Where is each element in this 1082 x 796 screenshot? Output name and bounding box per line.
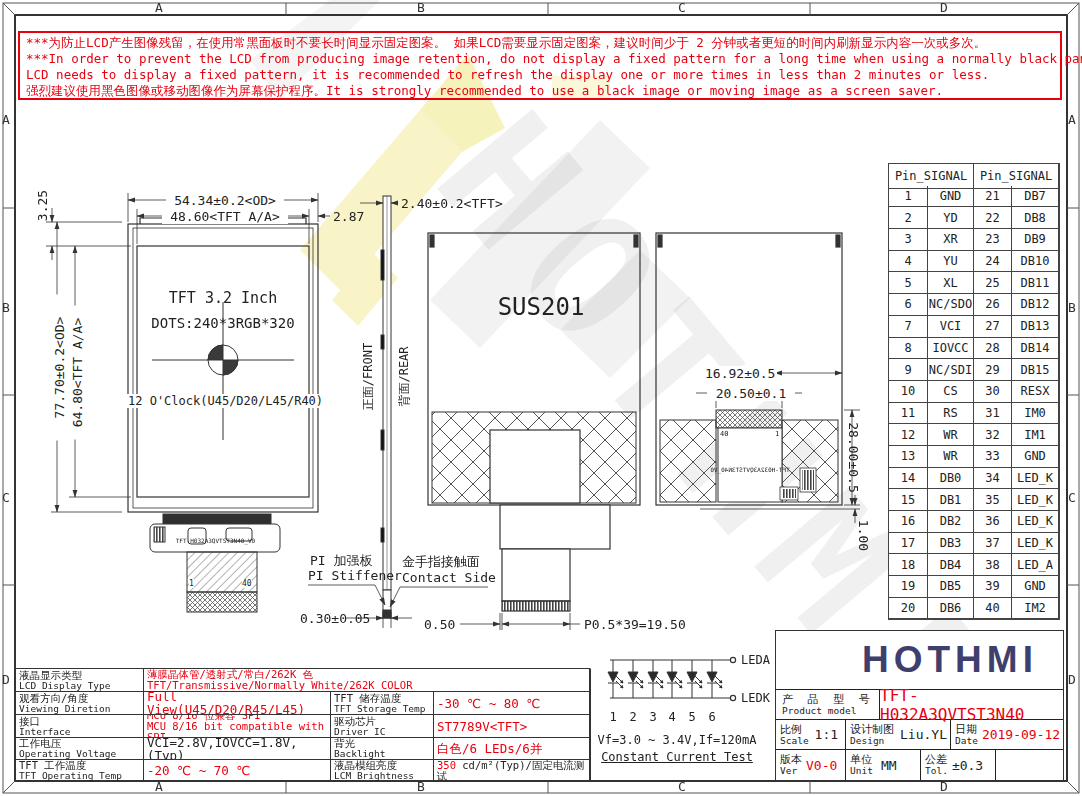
zone-letter: A bbox=[155, 0, 163, 15]
model-value-cell: TFT-H032A3QVTST3N40 bbox=[880, 690, 1063, 720]
pin-signal: RS bbox=[928, 403, 974, 425]
pin-signal: VCI bbox=[928, 316, 974, 338]
dim-finger-pitch: P0.5*39=19.50 bbox=[584, 617, 686, 632]
tolerance-value: ±0.3 bbox=[952, 758, 983, 773]
pin-signal: DB0 bbox=[928, 468, 974, 490]
title-block: HOTHMI 产 品 型 号Product model TFT-H032A3QV… bbox=[775, 630, 1064, 781]
stiffener-label-en: PI Stiffener bbox=[308, 568, 402, 583]
dim-width-aa: 48.60<TFT A/A> bbox=[162, 209, 288, 224]
scale-value: 1:1 bbox=[815, 727, 838, 742]
led-anode-label: LEDA bbox=[741, 653, 770, 667]
pin-signal: YD bbox=[928, 207, 974, 229]
pin-number: 30 bbox=[974, 381, 1012, 403]
zone-letter: B bbox=[1068, 300, 1076, 315]
dim-height-aa: 64.80<TFT A/A> bbox=[70, 306, 85, 440]
pin-number: 12 bbox=[889, 424, 928, 446]
zone-letter: D bbox=[1068, 672, 1076, 687]
pin-number: 36 bbox=[974, 511, 1012, 533]
warning-line: LCD needs to display a fixed pattern, it… bbox=[26, 67, 1054, 83]
pin-number: 5 bbox=[889, 272, 928, 294]
pin-signal: IM0 bbox=[1012, 403, 1059, 425]
pin-number: 4 bbox=[889, 251, 928, 273]
pin-signal: DB8 bbox=[1012, 207, 1059, 229]
pin-signal: XL bbox=[928, 272, 974, 294]
pin-signal: DB12 bbox=[1012, 294, 1059, 316]
pin-signal: DB9 bbox=[1012, 229, 1059, 251]
pin-signal: YU bbox=[928, 251, 974, 273]
rear-side-label: 背面/REAR bbox=[396, 336, 413, 418]
pin-signal: GND bbox=[1012, 446, 1059, 468]
pin-signal: DB2 bbox=[928, 511, 974, 533]
spec-value: Full View(U45/D20/R45/L45) bbox=[144, 692, 331, 715]
spec-value: 薄膜晶体管/透射式/常白/262K 色TFT/Transmissive/Norm… bbox=[144, 669, 591, 692]
pin-number: 32 bbox=[974, 424, 1012, 446]
pin-number: 21 bbox=[974, 186, 1012, 208]
dim-rear-width2: 20.50±0.1 bbox=[707, 386, 795, 401]
spec-label: TFT 工作温度TFT Operating Temp bbox=[16, 760, 144, 782]
rear-fpc-model-text: TFT-H032A3QVTST3N40_V0 bbox=[705, 466, 795, 473]
panel-dots-text: DOTS:240*3RGB*320 bbox=[138, 315, 308, 331]
pin-number: 31 bbox=[974, 403, 1012, 425]
pin-signal: WR bbox=[928, 424, 974, 446]
pin-number: 10 bbox=[889, 381, 928, 403]
led-vf-text: Vf=3.0 ~ 3.4V,If=120mA bbox=[592, 733, 762, 747]
pin-number: 26 bbox=[974, 294, 1012, 316]
dim-rear-lip: 1.00 bbox=[856, 516, 871, 556]
panel-size-text: TFT 3.2 Inch bbox=[148, 289, 298, 307]
pin-number: 9 bbox=[889, 359, 928, 381]
dim-thickness: 2.40±0.2<TFT> bbox=[401, 196, 503, 211]
zone-letter: D bbox=[940, 0, 948, 15]
pin-signal: LED_K bbox=[1012, 489, 1059, 511]
front-side-label: 正面/FRONT bbox=[360, 336, 377, 418]
pin-number: 37 bbox=[974, 533, 1012, 555]
dim-stiffener-thk: 0.30±0.05 bbox=[300, 611, 370, 626]
model-label-cell: 产 品 型 号Product model bbox=[776, 690, 880, 720]
pin-number: 33 bbox=[974, 446, 1012, 468]
zone-letter: C bbox=[2, 490, 10, 505]
pin-signal: NC/SDO bbox=[928, 294, 974, 316]
spec-value: -20 ℃ ~ 70 ℃ bbox=[144, 760, 331, 782]
zone-letter: D bbox=[2, 672, 10, 687]
design-cell: 设计制图Design Liu.YL bbox=[846, 720, 951, 750]
pin-signal-table: Pin_SIGNAL Pin_SIGNAL 1GND21DB72YD22DB83… bbox=[888, 163, 1060, 620]
pin-signal: LED_K bbox=[1012, 533, 1059, 555]
led-number: 2 bbox=[627, 710, 639, 724]
pin-signal: DB13 bbox=[1012, 316, 1059, 338]
pin-number: 38 bbox=[974, 554, 1012, 576]
fpc-pin-last: 40 bbox=[242, 579, 252, 588]
pin-signal: DB5 bbox=[928, 576, 974, 598]
zone-letter: C bbox=[678, 779, 686, 794]
spec-label: TFT 储存温度TFT Storage Temp bbox=[331, 692, 434, 715]
pin-signal: DB1 bbox=[928, 489, 974, 511]
spec-value: MCU 8/16 位兼容 SPIMCU 8/16 bit compatible … bbox=[144, 715, 331, 738]
shield-material-label: SUS201 bbox=[481, 293, 601, 321]
fpc-pin-first: 1 bbox=[189, 579, 194, 588]
dim-rear-width1: 16.92±0.5 bbox=[703, 366, 777, 381]
zone-letter: B bbox=[417, 0, 425, 15]
dim-finger-offset: 0.50 bbox=[424, 617, 455, 632]
dim-rear-height: 28.00±0.5 bbox=[846, 413, 861, 503]
panel-clock-text: 12 O'Clock(U45/D20/L45/R40) bbox=[126, 394, 324, 408]
led-number: 4 bbox=[666, 710, 678, 724]
pin-number: 34 bbox=[974, 468, 1012, 490]
led-cathode-label: LEDK bbox=[741, 691, 770, 705]
spec-label: 观看方向/角度Viewing Diretion bbox=[16, 692, 144, 715]
warning-line: ***为防止LCD产生图像残留，在使用常黑面板时不要长时间显示固定图案。 如果L… bbox=[26, 35, 1054, 51]
pin-number: 18 bbox=[889, 554, 928, 576]
led-number: 1 bbox=[607, 710, 619, 724]
pin-number: 27 bbox=[974, 316, 1012, 338]
scale-cell: 比例Scale 1:1 bbox=[776, 720, 846, 750]
pin-signal: LED_K bbox=[1012, 511, 1059, 533]
contact-label-en: Contact Side bbox=[402, 570, 496, 585]
pin-signal: WR bbox=[928, 446, 974, 468]
pin-number: 6 bbox=[889, 294, 928, 316]
pin-signal: DB6 bbox=[928, 598, 974, 620]
zone-letter: D bbox=[940, 779, 948, 794]
pin-number: 24 bbox=[974, 251, 1012, 273]
pin-number: 17 bbox=[889, 533, 928, 555]
pin-signal: GND bbox=[1012, 576, 1059, 598]
brand-row: HOTHMI bbox=[776, 631, 1063, 690]
warning-note: ***为防止LCD产生图像残留，在使用常黑面板时不要长时间显示固定图案。 如果L… bbox=[18, 31, 1062, 100]
spec-label: 接口Interface bbox=[16, 715, 144, 738]
zone-letter: C bbox=[678, 0, 686, 15]
pin-signal: XR bbox=[928, 229, 974, 251]
pin-number: 20 bbox=[889, 598, 928, 620]
spec-label: 工作电压Operating Voltage bbox=[16, 738, 144, 760]
warning-line: ***In order to prevent the LCD from prod… bbox=[26, 51, 1054, 67]
pin-signal: DB14 bbox=[1012, 338, 1059, 360]
pin-signal: CS bbox=[928, 381, 974, 403]
design-value: Liu.YL bbox=[900, 727, 947, 742]
warning-line: 强烈建议使用黑色图像或移动图像作为屏幕保护程序。It is strongly r… bbox=[26, 83, 1054, 99]
pin-signal: DB4 bbox=[928, 554, 974, 576]
spec-label: 液晶模组亮度LCM Brightness bbox=[331, 760, 434, 782]
brand-name: HOTHMI bbox=[862, 639, 1038, 681]
datasheet-drawing-page: HOTHMI bbox=[0, 0, 1082, 796]
rear-pin-last: 40 bbox=[720, 430, 728, 438]
pin-signal: IM2 bbox=[1012, 598, 1059, 620]
unit-cell: 单位Unit MM bbox=[846, 750, 921, 780]
pin-signal: RESX bbox=[1012, 381, 1059, 403]
pin-number: 29 bbox=[974, 359, 1012, 381]
date-cell: 日期Date 2019-09-12 bbox=[951, 720, 1063, 750]
pin-number: 16 bbox=[889, 511, 928, 533]
zone-letter: C bbox=[1068, 490, 1076, 505]
pin-number: 19 bbox=[889, 576, 928, 598]
pin-signal: IM1 bbox=[1012, 424, 1059, 446]
pin-signal: DB11 bbox=[1012, 272, 1059, 294]
dim-top-gap: 3.25 bbox=[35, 184, 50, 228]
spec-value: 350 cd/m²(Typ)/固定电流测试 bbox=[434, 760, 591, 782]
pin-signal: DB10 bbox=[1012, 251, 1059, 273]
product-model: TFT-H032A3QVTST3N40 bbox=[880, 686, 1063, 724]
spec-label: 驱动芯片Driver IC bbox=[331, 715, 434, 738]
zone-letter: B bbox=[2, 300, 10, 315]
spec-value: -30 ℃ ~ 80 ℃ bbox=[434, 692, 591, 715]
pin-signal: DB7 bbox=[1012, 186, 1059, 208]
pin-signal: LED_A bbox=[1012, 554, 1059, 576]
pin-signal: LED_K bbox=[1012, 468, 1059, 490]
date-value: 2019-09-12 bbox=[982, 727, 1060, 742]
pin-number: 23 bbox=[974, 229, 1012, 251]
pin-number: 15 bbox=[889, 489, 928, 511]
pin-signal: NC/SDI bbox=[928, 359, 974, 381]
version-cell: 版本Ver V0-0 bbox=[776, 750, 846, 780]
rear-pin-first: 1 bbox=[775, 430, 779, 438]
pin-number: 25 bbox=[974, 272, 1012, 294]
pin-number: 7 bbox=[889, 316, 928, 338]
led-number: 3 bbox=[647, 710, 659, 724]
spec-table: 液晶显示类型LCD Display Type 薄膜晶体管/透射式/常白/262K… bbox=[15, 668, 590, 781]
unit-value: MM bbox=[881, 758, 897, 773]
dim-height-od: 77.70±0.2<OD> bbox=[52, 295, 67, 441]
pin-number: 3 bbox=[889, 229, 928, 251]
pin-number: 35 bbox=[974, 489, 1012, 511]
pin-number: 39 bbox=[974, 576, 1012, 598]
pin-number: 28 bbox=[974, 338, 1012, 360]
pin-number: 14 bbox=[889, 468, 928, 490]
version-value: V0-0 bbox=[806, 758, 837, 773]
spec-label: 液晶显示类型LCD Display Type bbox=[16, 669, 144, 692]
spec-value: 白色/6 LEDs/6并 bbox=[434, 738, 591, 760]
led-test-text: Constant Current Test bbox=[592, 750, 762, 764]
spec-value: ST7789V<TFT> bbox=[434, 715, 591, 738]
pin-number: 13 bbox=[889, 446, 928, 468]
led-number: 6 bbox=[706, 710, 718, 724]
pin-signal: DB15 bbox=[1012, 359, 1059, 381]
dim-right-gap: 2.87 bbox=[333, 209, 364, 224]
pin-signal: GND bbox=[928, 186, 974, 208]
fpc-model-text: TFT-H032A3QVTST3N40_V0 bbox=[168, 537, 263, 544]
led-number: 5 bbox=[686, 710, 698, 724]
pin-number: 2 bbox=[889, 207, 928, 229]
pin-signal: IOVCC bbox=[928, 338, 974, 360]
tolerance-cell: 公差Tol. ±0.3 bbox=[921, 750, 996, 780]
pin-number: 22 bbox=[974, 207, 1012, 229]
pin-number: 8 bbox=[889, 338, 928, 360]
contact-label-zh: 金手指接触面 bbox=[402, 553, 480, 571]
dim-width-od: 54.34±0.2<OD> bbox=[166, 193, 284, 208]
zone-letter: A bbox=[2, 112, 10, 127]
pin-signal: DB3 bbox=[928, 533, 974, 555]
spec-value: VCI=2.8V,IOVCC=1.8V,(Typ) bbox=[144, 738, 331, 760]
spec-label: 背光Backlight bbox=[331, 738, 434, 760]
pin-number: 11 bbox=[889, 403, 928, 425]
pin-number: 1 bbox=[889, 186, 928, 208]
zone-letter: A bbox=[1068, 112, 1076, 127]
pin-number: 40 bbox=[974, 598, 1012, 620]
